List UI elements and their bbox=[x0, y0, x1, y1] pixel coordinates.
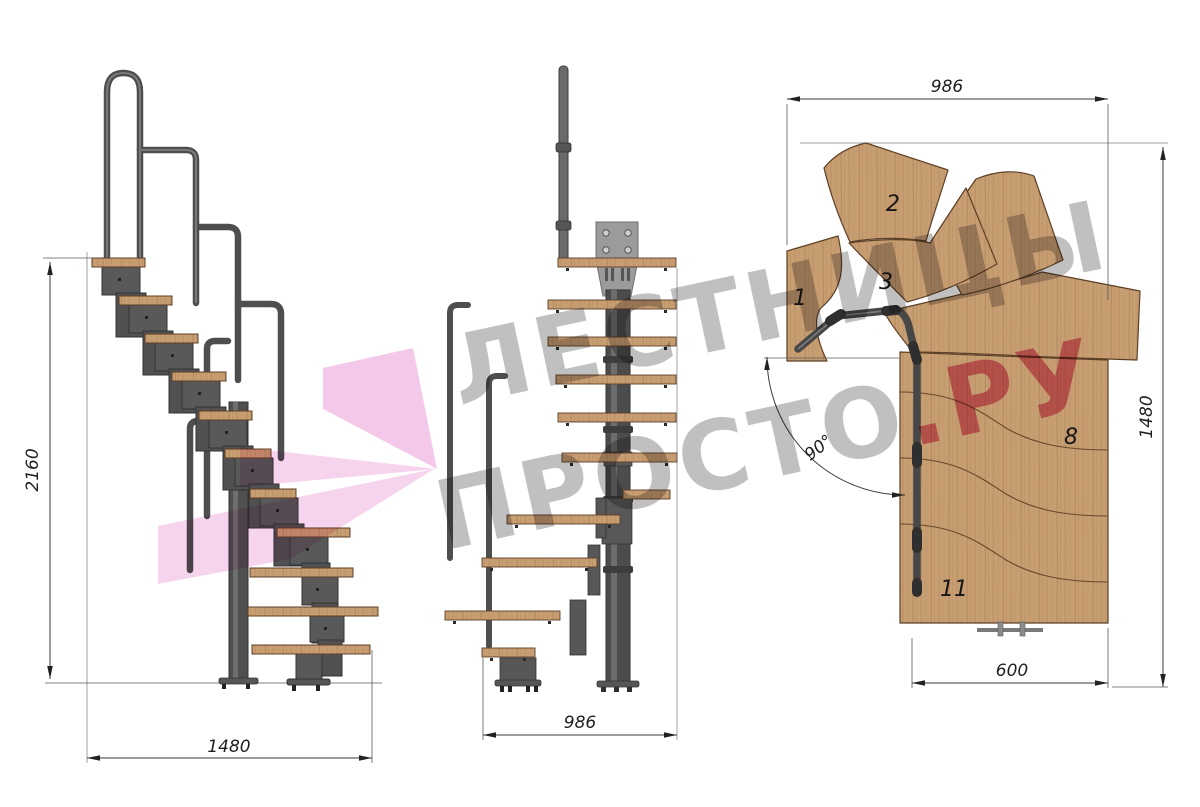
plan-base-bracket bbox=[977, 622, 1043, 636]
front-left-base-flange bbox=[495, 680, 541, 686]
staircase-drawing-svg: 1 2 3 8 11 2160 1480 bbox=[0, 0, 1200, 807]
plan-fan-treads bbox=[787, 143, 1140, 361]
handrail-loop bbox=[107, 73, 140, 259]
plan-tread-label-11: 11 bbox=[940, 577, 968, 602]
front-view bbox=[445, 66, 677, 692]
svg-text:1480: 1480 bbox=[207, 737, 250, 757]
svg-text:986: 986 bbox=[931, 77, 964, 97]
svg-text:2160: 2160 bbox=[23, 448, 43, 491]
technical-drawing-canvas: 1 2 3 8 11 2160 1480 bbox=[0, 0, 1200, 807]
plan-tread-label-3: 3 bbox=[879, 270, 893, 295]
svg-text:600: 600 bbox=[996, 661, 1028, 681]
front-handrail bbox=[450, 305, 505, 646]
svg-text:986: 986 bbox=[564, 713, 597, 733]
svg-text:90°: 90° bbox=[801, 431, 837, 465]
dim-side-height: 2160 bbox=[23, 258, 92, 679]
front-top-post bbox=[556, 66, 571, 266]
front-left-base-bolts bbox=[500, 686, 538, 692]
plan-tread-label-8: 8 bbox=[1064, 425, 1078, 450]
front-tread-bolts bbox=[453, 268, 668, 661]
plan-straight-run bbox=[900, 352, 1108, 623]
logo-lower-strip bbox=[158, 469, 434, 584]
plan-view: 1 2 3 8 11 bbox=[787, 143, 1140, 636]
dim-plan-width-bottom: 600 bbox=[912, 628, 1108, 688]
svg-text:1480: 1480 bbox=[1137, 395, 1157, 438]
front-treads bbox=[445, 258, 677, 657]
logo-upper-shape bbox=[323, 348, 437, 469]
plan-tread-label-1: 1 bbox=[793, 286, 807, 311]
plan-tread-label-2: 2 bbox=[886, 192, 900, 217]
dim-plan-angle: 90° bbox=[764, 357, 905, 498]
